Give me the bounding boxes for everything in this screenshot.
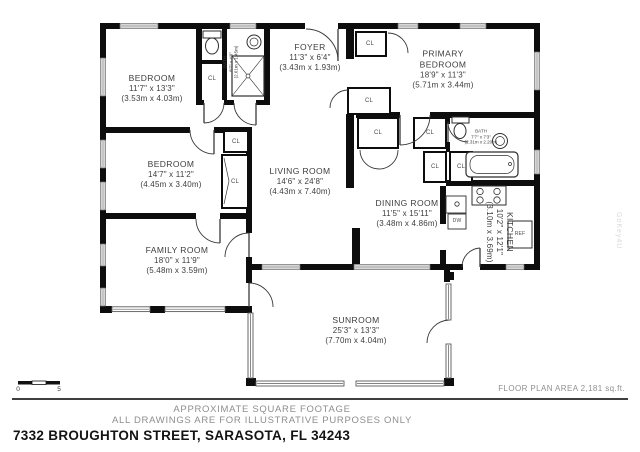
floor-plan-area-note: FLOOR PLAN AREA 2,181 sq.ft.: [498, 384, 625, 393]
room-label-bath1: BATH 8'7" x 4'9" (2.61m x 1.45m): [223, 46, 240, 79]
toilet-icon: [452, 117, 469, 123]
room-label-bedroom1: BEDROOM 11'7" x 13'3" (3.53m x 4.03m): [121, 73, 182, 105]
closet-label: CL: [457, 164, 465, 170]
room-label-bath2: BATH 7'7" x 7'3" (2.31m x 2.20m): [465, 129, 498, 146]
room-label-bedroom2: BEDROOM 14'7" x 11'2" (4.45m x 3.40m): [140, 159, 201, 191]
dishwasher-label: DW: [453, 218, 462, 224]
scale-bar: [18, 381, 60, 385]
room-label-dining-room: DINING ROOM 11'5" x 15'11" (3.48m x 4.86…: [376, 198, 439, 230]
closet-label: CL: [374, 130, 382, 136]
closet-label: CL: [365, 98, 373, 104]
room-label-kitchen: KITCHEN 10'2" x 12'1" (3.10m x 3.69m): [483, 201, 515, 262]
room-label-foyer: FOYER 11'3" x 6'4" (3.43m x 1.93m): [279, 42, 340, 74]
closet-label: CL: [431, 164, 439, 170]
disclaimer-line-2: ALL DRAWINGS ARE FOR ILLUSTRATIVE PURPOS…: [112, 415, 412, 426]
room-label-living-room: LIVING ROOM 14'6" x 24'8" (4.43m x 7.40m…: [269, 166, 330, 198]
closet-label: CL: [231, 179, 239, 185]
room-label-primary-bedroom: PRIMARY BEDROOM 18'9" x 11'3" (5.71m x 3…: [412, 49, 473, 92]
room-label-sunroom: SUNROOM 25'3" x 13'3" (7.70m x 4.04m): [325, 315, 386, 347]
refrigerator-label: REF: [515, 231, 526, 237]
scale-end-label: 5: [57, 386, 61, 393]
room-label-family-room: FAMILY ROOM 18'0" x 11'9" (5.48m x 3.59m…: [146, 245, 209, 277]
closet-label: CL: [232, 139, 240, 145]
closet-label: CL: [366, 41, 374, 47]
footer-divider: [12, 398, 628, 400]
toilet-icon: [203, 31, 221, 38]
floor-plan-page: BEDROOM 11'7" x 13'3" (3.53m x 4.03m) BE…: [0, 0, 640, 452]
disclaimer-line-1: APPROXIMATE SQUARE FOOTAGE: [173, 404, 350, 415]
property-address: 7332 BROUGHTON STREET, SARASOTA, FL 3424…: [13, 428, 350, 443]
scale-start-label: 0: [16, 386, 20, 393]
closet-label: CL: [426, 130, 434, 136]
watermark: GoKey4U: [615, 212, 622, 249]
closet-label: CL: [208, 76, 216, 82]
